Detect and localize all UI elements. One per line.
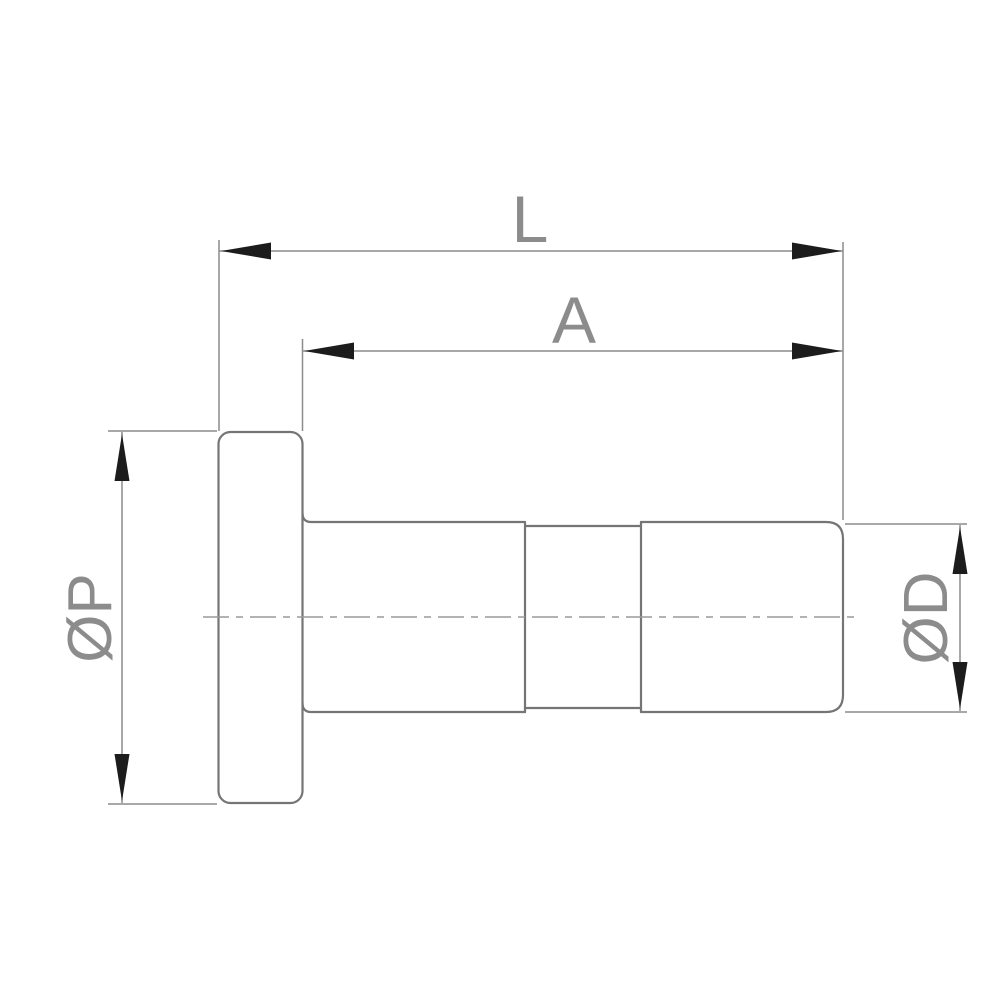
technical-drawing-canvas: L A ØP ØD bbox=[0, 0, 1000, 1000]
dim-D-label: ØD bbox=[892, 572, 961, 665]
body-bottom-edge-left bbox=[303, 703, 526, 712]
dim-A-label: A bbox=[552, 283, 596, 357]
dimension-A: A bbox=[303, 283, 844, 431]
dimension-P: ØP bbox=[56, 431, 217, 804]
dim-L-label: L bbox=[512, 182, 549, 256]
body-top-edge-left bbox=[303, 513, 526, 522]
dim-L-arrow-left bbox=[221, 243, 271, 260]
body-outline bbox=[303, 513, 844, 712]
part-drawing: L A ØP ØD bbox=[0, 0, 1000, 1000]
dim-D-arrow-bottom bbox=[953, 662, 968, 709]
dim-L-arrow-right bbox=[792, 243, 842, 260]
dim-D-arrow-top bbox=[953, 527, 968, 574]
dim-A-arrow-left bbox=[304, 343, 354, 360]
dim-P-arrow-top bbox=[115, 434, 130, 481]
dim-P-label: ØP bbox=[56, 573, 125, 663]
dimension-D: ØD bbox=[845, 524, 968, 712]
dim-A-arrow-right bbox=[792, 343, 842, 360]
dim-P-arrow-bottom bbox=[115, 754, 130, 801]
